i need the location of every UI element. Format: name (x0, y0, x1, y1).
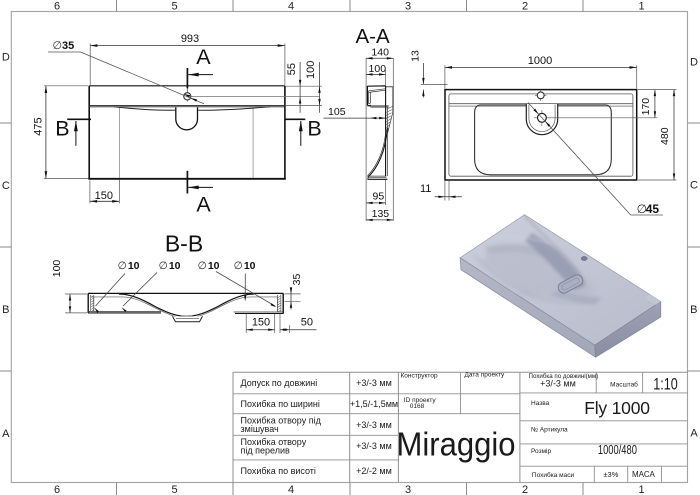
svg-text:A: A (690, 428, 698, 440)
svg-text:10: 10 (169, 260, 181, 272)
svg-text:55: 55 (286, 63, 298, 75)
svg-text:C: C (2, 180, 10, 192)
svg-text:під перелив: під перелив (241, 445, 290, 455)
svg-text:10: 10 (208, 260, 220, 272)
svg-text:475: 475 (32, 117, 44, 135)
svg-text:Назва: Назва (531, 400, 550, 407)
svg-text:480: 480 (659, 127, 671, 145)
svg-text:∅: ∅ (234, 260, 243, 272)
svg-text:6: 6 (54, 1, 60, 13)
svg-text:Конструктор: Конструктор (401, 373, 438, 380)
svg-text:140: 140 (371, 47, 389, 59)
svg-text:150: 150 (95, 190, 113, 202)
svg-text:150: 150 (252, 317, 270, 329)
svg-text:C: C (690, 180, 698, 192)
svg-text:2: 2 (522, 484, 528, 495)
svg-text:135: 135 (372, 208, 390, 220)
svg-text:170: 170 (640, 98, 652, 116)
svg-text:1:10: 1:10 (653, 375, 678, 394)
svg-text:МАСА: МАСА (632, 470, 655, 479)
svg-text:∅: ∅ (198, 260, 207, 272)
svg-text:1: 1 (638, 484, 644, 495)
svg-text:A: A (196, 45, 211, 69)
svg-text:100: 100 (51, 260, 63, 278)
svg-text:+3/-3 мм: +3/-3 мм (356, 420, 392, 430)
svg-text:+1,5/-1,5мм: +1,5/-1,5мм (350, 399, 398, 409)
svg-text:±3%: ±3% (603, 470, 618, 479)
svg-text:Масштаб: Масштаб (610, 380, 638, 388)
svg-text:4: 4 (288, 484, 294, 495)
svg-text:45: 45 (646, 202, 660, 216)
svg-text:A: A (196, 193, 211, 217)
svg-text:3: 3 (405, 1, 411, 13)
svg-text:1000: 1000 (528, 55, 552, 67)
svg-text:№ Артикула: № Артикула (531, 426, 568, 433)
svg-text:+3/-3 мм: +3/-3 мм (356, 441, 392, 451)
svg-text:Допуск по довжині: Допуск по довжині (241, 378, 318, 388)
svg-text:A: A (2, 428, 10, 440)
svg-text:Похибка по висоті: Похибка по висоті (241, 466, 316, 476)
svg-text:3: 3 (405, 484, 411, 495)
svg-text:∅: ∅ (118, 260, 127, 272)
svg-text:+2/-2 мм: +2/-2 мм (356, 466, 392, 476)
svg-text:1: 1 (638, 1, 644, 13)
svg-text:35: 35 (291, 274, 303, 286)
svg-text:B: B (307, 117, 321, 141)
svg-text:D: D (2, 52, 10, 64)
svg-text:+3/-3 мм: +3/-3 мм (356, 378, 392, 388)
svg-text:1000/480: 1000/480 (598, 443, 637, 457)
svg-text:5: 5 (171, 484, 177, 495)
svg-text:Похибка маси: Похибка маси (532, 471, 575, 479)
svg-text:Дата проекту: Дата проекту (465, 372, 506, 379)
svg-text:10: 10 (128, 260, 140, 272)
svg-text:+3/-3 мм: +3/-3 мм (540, 379, 576, 389)
svg-text:B-B: B-B (165, 230, 203, 256)
svg-text:95: 95 (373, 190, 385, 202)
svg-text:35: 35 (62, 40, 74, 52)
svg-text:B: B (690, 304, 697, 316)
svg-text:105: 105 (328, 106, 346, 118)
svg-text:10: 10 (244, 260, 256, 272)
svg-text:D: D (690, 57, 698, 69)
svg-text:B: B (2, 304, 9, 316)
svg-text:13: 13 (410, 50, 422, 62)
svg-text:A-A: A-A (356, 25, 391, 48)
svg-text:11: 11 (420, 183, 431, 195)
svg-text:Похибка по ширині: Похибка по ширині (241, 399, 320, 409)
svg-text:100: 100 (305, 61, 317, 79)
svg-text:2: 2 (522, 1, 528, 13)
svg-text:∅: ∅ (53, 40, 63, 52)
svg-text:B: B (55, 117, 69, 141)
svg-text:Розмір: Розмір (531, 447, 551, 455)
svg-text:0168: 0168 (410, 403, 425, 410)
svg-text:5: 5 (171, 1, 177, 13)
svg-text:6: 6 (54, 484, 60, 495)
svg-text:50: 50 (301, 317, 313, 329)
svg-text:993: 993 (181, 33, 199, 45)
svg-text:Miraggio: Miraggio (397, 426, 516, 463)
svg-text:∅: ∅ (159, 260, 168, 272)
svg-text:100: 100 (369, 63, 387, 75)
svg-text:Fly 1000: Fly 1000 (584, 398, 650, 418)
svg-text:4: 4 (288, 1, 294, 13)
svg-text:змішувач: змішувач (241, 424, 280, 434)
